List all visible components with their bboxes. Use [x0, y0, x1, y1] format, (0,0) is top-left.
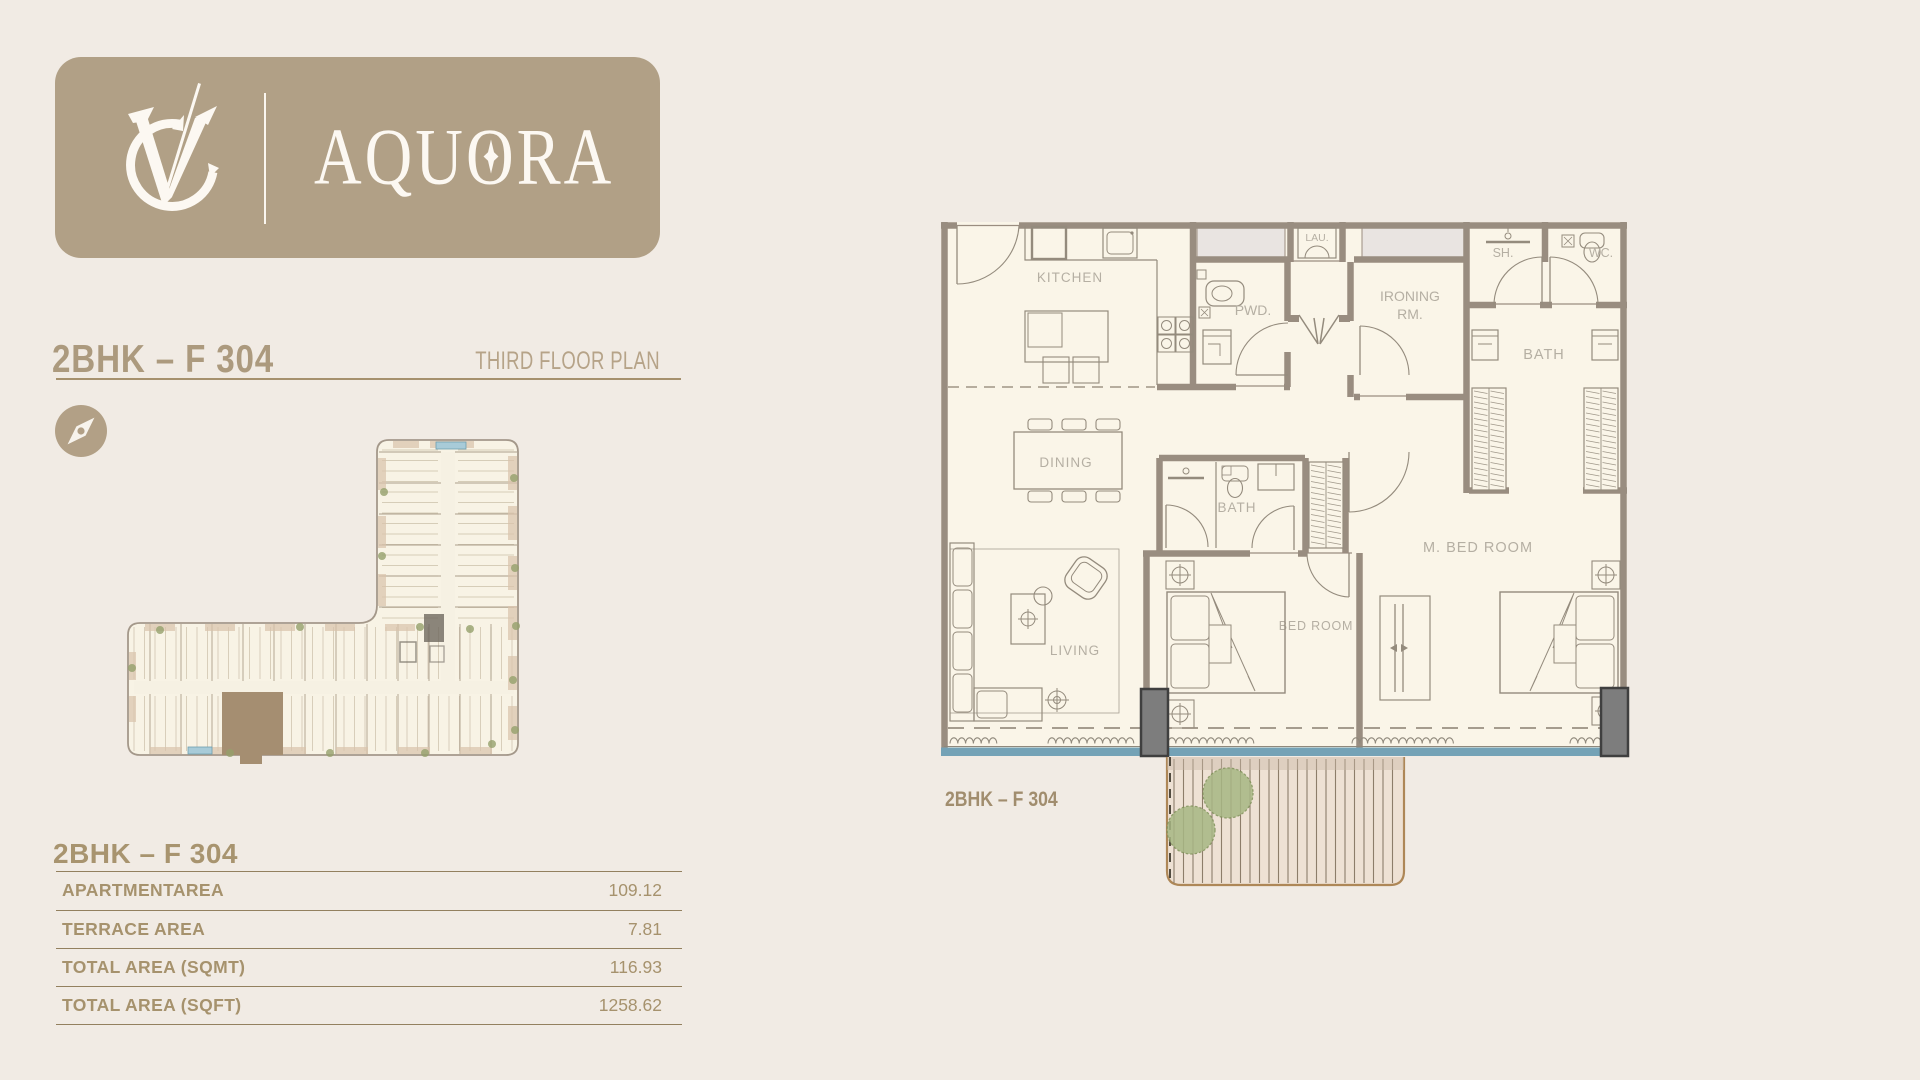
svg-text:PWD.: PWD.	[1235, 302, 1272, 318]
svg-text:BATH: BATH	[1217, 500, 1256, 515]
svg-text:DINING: DINING	[1039, 455, 1092, 470]
svg-text:SH.: SH.	[1493, 246, 1514, 260]
svg-text:BED ROOM: BED ROOM	[1279, 619, 1353, 633]
svg-text:LIVING: LIVING	[1050, 643, 1100, 658]
svg-text:M. BED ROOM: M. BED ROOM	[1423, 540, 1533, 556]
svg-text:RM.: RM.	[1397, 306, 1423, 322]
svg-text:IRONING: IRONING	[1380, 288, 1440, 304]
svg-text:LAU.: LAU.	[1305, 232, 1328, 244]
svg-text:KITCHEN: KITCHEN	[1037, 270, 1103, 285]
svg-text:BATH: BATH	[1523, 347, 1565, 363]
svg-text:WC.: WC.	[1589, 246, 1613, 260]
